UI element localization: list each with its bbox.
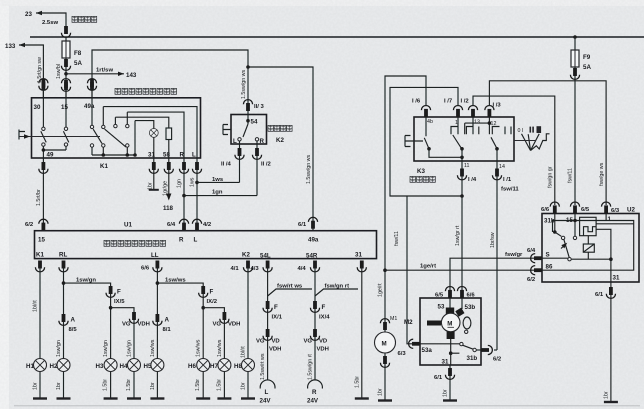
svg-text:F: F [322,304,326,311]
svg-text:6/1: 6/1 [298,222,307,228]
svg-text:1br: 1br [241,382,247,390]
svg-text:4b: 4b [427,119,433,125]
svg-text:I /7: I /7 [444,99,453,105]
svg-text:1ge/rt: 1ge/rt [378,283,384,297]
svg-text:L: L [192,152,196,159]
svg-text:24V: 24V [307,398,319,405]
svg-text:IX/1: IX/1 [272,315,283,321]
svg-text:1.5rt/br: 1.5rt/br [36,189,42,206]
svg-text:fsw/ge ws: fsw/ge ws [599,162,605,186]
svg-text:1.5sw/gn ws: 1.5sw/gn ws [306,155,312,184]
svg-text:24V: 24V [260,398,272,405]
svg-text:1sw/gn: 1sw/gn [103,340,109,357]
svg-text:fsw/11: fsw/11 [501,187,519,193]
svg-text:F: F [117,289,121,296]
svg-text:R: R [260,138,265,145]
svg-text:1bl/rt: 1bl/rt [241,346,247,358]
svg-text:49: 49 [47,152,54,159]
svg-text:6/5: 6/5 [581,207,590,213]
svg-text:6/6: 6/6 [141,266,150,272]
svg-text:1sw/gn: 1sw/gn [56,340,62,357]
svg-text:K2: K2 [276,137,284,144]
svg-text:1.5sw/gn ws: 1.5sw/gn ws [241,70,247,99]
svg-text:0 I: 0 I [518,128,524,134]
svg-text:1br: 1br [604,391,610,399]
svg-text:1br: 1br [443,389,449,397]
svg-text:1.5br: 1.5br [217,379,223,391]
svg-text:6/2: 6/2 [25,222,34,228]
svg-text:H3: H3 [96,363,104,370]
svg-text:53: 53 [438,304,445,311]
svg-text:1.5br: 1.5br [126,379,132,391]
svg-text:K3: K3 [417,168,425,175]
svg-text:I /6: I /6 [412,99,421,105]
svg-text:VG: VG [304,339,313,345]
svg-text:4/3: 4/3 [251,266,260,272]
svg-text:L: L [194,237,198,244]
svg-text:I /4: I /4 [468,177,477,183]
svg-text:1sw/ws: 1sw/ws [150,339,156,357]
svg-text:4/1: 4/1 [231,266,240,272]
svg-text:IX/4: IX/4 [319,315,330,321]
svg-text:5A: 5A [583,64,591,71]
svg-text:54: 54 [251,119,258,126]
svg-text:49a: 49a [308,237,319,244]
svg-text:6/6: 6/6 [467,293,476,299]
svg-text:118: 118 [163,205,174,212]
svg-text:143: 143 [126,72,137,79]
svg-text:1.5sw/gn rt: 1.5sw/gn rt [308,354,314,380]
svg-text:fsw/gr: fsw/gr [505,252,523,258]
svg-text:1gn: 1gn [177,179,183,188]
svg-text:6/3: 6/3 [398,351,407,357]
svg-text:fsw/gn gr: fsw/gn gr [548,166,554,188]
svg-text:II /2: II /2 [261,162,272,168]
svg-text:VDH: VDH [228,322,240,328]
svg-text:31: 31 [442,359,449,366]
svg-text:1gn: 1gn [212,190,223,196]
svg-text:fsw/11: fsw/11 [394,231,400,246]
svg-text:A: A [165,317,170,324]
svg-text:1.5br: 1.5br [103,379,109,391]
svg-text:1br: 1br [150,382,156,390]
svg-text:31: 31 [613,275,620,282]
svg-text:1: 1 [608,216,612,223]
svg-text:8/5: 8/5 [69,327,78,333]
svg-text:U2: U2 [627,207,635,214]
svg-text:IX/5: IX/5 [114,299,125,305]
svg-text:H6: H6 [188,363,196,370]
svg-text:II /4: II /4 [221,162,232,168]
svg-text:30: 30 [34,104,41,111]
svg-text:13: 13 [474,120,480,126]
svg-text:8/1: 8/1 [163,327,172,333]
svg-text:31: 31 [355,252,362,259]
svg-text:VDH: VDH [138,322,150,328]
svg-text:U1: U1 [124,222,132,229]
svg-text:R: R [312,389,317,396]
svg-text:I /2: I /2 [461,99,470,105]
svg-text:R: R [179,237,184,244]
svg-text:15: 15 [38,237,45,244]
svg-text:14: 14 [499,164,505,170]
svg-text:1.5br: 1.5br [355,376,361,388]
svg-text:6/5: 6/5 [435,293,444,299]
svg-text:1sw/gn: 1sw/gn [127,340,133,357]
svg-text:6/1: 6/1 [595,292,604,298]
svg-text:11: 11 [464,163,470,169]
svg-text:VD: VD [319,339,327,345]
svg-text:31b: 31b [467,355,478,362]
svg-text:6/1: 6/1 [434,375,443,381]
svg-text:VG: VG [122,322,131,328]
svg-text:K2: K2 [242,252,250,259]
svg-text:1sw/gr rt: 1sw/gr rt [455,225,461,246]
svg-text:M1: M1 [390,316,397,322]
svg-text:1ws: 1ws [190,177,196,187]
svg-text:L: L [265,389,269,396]
svg-text:53a: 53a [422,347,433,354]
svg-text:1sw/ws: 1sw/ws [196,339,202,357]
svg-text:53b: 53b [465,304,476,311]
svg-text:49a: 49a [84,103,95,110]
svg-text:fsw/11: fsw/11 [568,168,574,183]
svg-text:15: 15 [61,104,68,111]
svg-text:VDH: VDH [269,347,281,353]
svg-text:K1: K1 [36,252,44,259]
svg-text:IX/2: IX/2 [207,299,218,305]
svg-text:1sw/ws: 1sw/ws [165,278,186,284]
svg-text:LL: LL [151,252,159,259]
svg-text:1ge/rt: 1ge/rt [420,264,436,270]
svg-text:1.5sw/rt ws: 1.5sw/rt ws [260,353,266,380]
svg-text:fsw/gn rt: fsw/gn rt [325,284,350,290]
svg-text:1rt/sw: 1rt/sw [96,68,113,74]
svg-text:6/3: 6/3 [611,208,620,214]
svg-text:S: S [546,252,550,259]
svg-text:F: F [210,289,214,296]
svg-text:4/2: 4/2 [203,222,212,228]
svg-text:1ws: 1ws [212,177,224,183]
svg-text:2.5sw: 2.5sw [42,20,58,26]
svg-text:RL: RL [59,252,67,259]
svg-text:fsw/rt ws: fsw/rt ws [277,284,303,290]
svg-text:A: A [71,317,76,324]
svg-text:23: 23 [25,11,32,18]
svg-text:133: 133 [5,43,16,50]
svg-text:1.5br: 1.5br [195,379,201,391]
svg-text:VDH: VDH [317,347,329,353]
svg-text:6/4: 6/4 [527,248,536,254]
svg-text:4/4: 4/4 [298,266,307,272]
svg-text:VG: VG [256,339,265,345]
svg-text:K1: K1 [100,163,108,170]
svg-text:1sw/gn: 1sw/gn [76,278,96,284]
svg-text:54R: 54R [306,253,318,260]
svg-text:VD: VD [272,339,280,345]
svg-text:1br/sw: 1br/sw [490,232,496,248]
svg-text:II/ 3: II/ 3 [254,104,265,110]
svg-text:I /1: I /1 [503,177,512,183]
svg-text:VG: VG [213,322,222,328]
svg-text:F9: F9 [583,54,591,61]
svg-text:M: M [447,321,452,328]
svg-text:1br: 1br [378,388,384,396]
svg-text:86: 86 [546,264,553,271]
svg-text:L: L [233,138,237,145]
svg-text:M: M [382,341,387,348]
svg-text:6/2: 6/2 [527,277,536,283]
svg-text:6/2: 6/2 [493,357,502,363]
svg-text:6/4: 6/4 [167,222,176,228]
svg-text:1bl/rt: 1bl/rt [33,300,39,312]
svg-text:H7: H7 [210,363,218,370]
svg-text:F: F [274,304,278,311]
svg-text:1br: 1br [33,382,39,390]
svg-text:1br: 1br [56,382,62,390]
svg-text:M2: M2 [404,319,413,326]
svg-text:54L: 54L [260,253,271,260]
svg-text:F8: F8 [74,50,82,57]
svg-text:1sw/ws: 1sw/ws [217,339,223,357]
svg-text:1sw/bl: 1sw/bl [56,64,62,79]
svg-text:5A: 5A [74,60,82,67]
svg-text:H4: H4 [120,363,128,370]
svg-text:6/6: 6/6 [541,207,550,213]
